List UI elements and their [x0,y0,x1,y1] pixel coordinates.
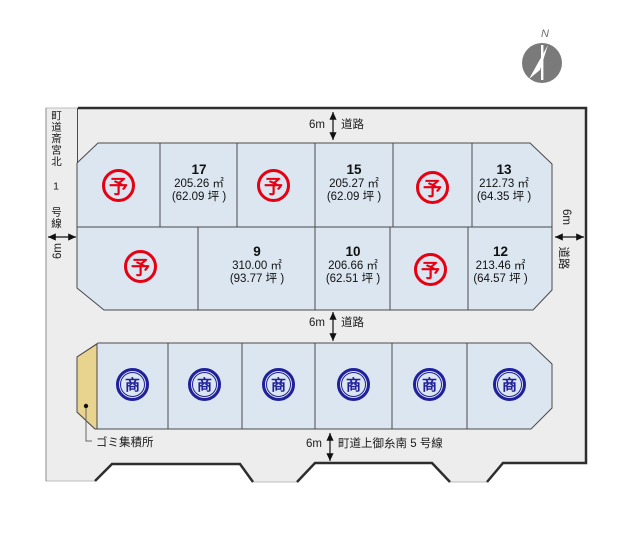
commercial-mark-inner-ring: 商 [417,372,442,397]
compass-north-label: N [541,27,549,41]
reserved-mark-glyph: 予 [109,172,128,199]
reserved-mark-glyph: 予 [131,253,150,280]
subdivision-lot-map: N 6m 道路 6m 道路 6m 町道上御糸南 5 号線 町道斎宮北 1 号線 … [0,0,625,554]
commercial-mark-inner-ring: 商 [497,372,522,397]
reserved-mark-icon: 予 [414,253,447,286]
commercial-mark-icon: 商 [188,368,221,401]
lot-15: 15 205.27 ㎡ (62.09 坪 ) [315,162,393,204]
commercial-mark-inner-ring: 商 [192,372,217,397]
commercial-mark-icon: 商 [116,368,149,401]
lot-17: 17 205.26 ㎡ (62.09 坪 ) [160,162,238,204]
reserved-mark-icon: 予 [257,169,290,202]
bottom-road-width-label: 6m [290,437,322,451]
commercial-mark-glyph: 商 [271,374,286,395]
commercial-mark-glyph: 商 [197,374,212,395]
commercial-mark-inner-ring: 商 [341,372,366,397]
bottom-road-name: 町道上御糸南 5 号線 [338,437,443,451]
lot-number: 15 [315,162,393,178]
lot-area-tsubo: (62.09 坪 ) [160,191,238,204]
lot-area-tsubo: (62.51 坪 ) [315,273,391,286]
commercial-mark-glyph: 商 [346,374,361,395]
middle-road-name: 道路 [341,316,364,330]
commercial-mark-icon: 商 [413,368,446,401]
reserved-mark-glyph: 予 [423,174,442,201]
commercial-mark-glyph: 商 [422,374,437,395]
lot-number: 10 [315,244,391,260]
lot-area-tsubo: (64.35 坪 ) [466,191,542,204]
commercial-mark-glyph: 商 [502,374,517,395]
lot-area-tsubo: (64.57 坪 ) [462,273,539,286]
lot-13: 13 212.73 ㎡ (64.35 坪 ) [466,162,542,204]
lot-10: 10 206.66 ㎡ (62.51 坪 ) [315,244,391,286]
lot-9: 9 310.00 ㎡ (93.77 坪 ) [198,244,316,286]
lot-12: 12 213.46 ㎡ (64.57 坪 ) [462,244,539,286]
reserved-mark-icon: 予 [124,250,157,283]
lot-number: 9 [198,244,316,260]
right-road-name: 道路 [556,242,570,274]
reserved-mark-icon: 予 [102,169,135,202]
reserved-mark-icon: 予 [416,171,449,204]
garbage-station-dot [84,404,88,408]
commercial-mark-inner-ring: 商 [120,372,145,397]
lot-area-tsubo: (93.77 坪 ) [198,273,316,286]
lot-number: 13 [466,162,542,178]
commercial-mark-inner-ring: 商 [266,372,291,397]
top-road-width-label: 6m [293,118,325,132]
lot-area-sqm: 310.00 ㎡ [198,260,316,273]
garbage-station-label: ゴミ集積所 [96,436,154,450]
reserved-mark-glyph: 予 [421,256,440,283]
left-road-name: 町道斎宮北 1 号線 [49,110,63,234]
right-road-width-label: 6m [559,203,573,231]
lot-area-tsubo: (62.09 坪 ) [315,191,393,204]
compass-icon [522,43,562,83]
lot-area-sqm: 205.26 ㎡ [160,178,238,191]
lot-area-sqm: 213.46 ㎡ [462,260,539,273]
lot-area-sqm: 206.66 ㎡ [315,260,391,273]
lot-area-sqm: 205.27 ㎡ [315,178,393,191]
commercial-mark-icon: 商 [337,368,370,401]
middle-road-width-label: 6m [293,316,325,330]
lot-area-sqm: 212.73 ㎡ [466,178,542,191]
top-road-name: 道路 [341,118,364,132]
lot-number: 17 [160,162,238,178]
left-road-width-label: 6m [51,237,65,265]
commercial-mark-glyph: 商 [125,374,140,395]
reserved-mark-glyph: 予 [264,172,283,199]
commercial-mark-icon: 商 [262,368,295,401]
commercial-mark-icon: 商 [493,368,526,401]
lot-number: 12 [462,244,539,260]
